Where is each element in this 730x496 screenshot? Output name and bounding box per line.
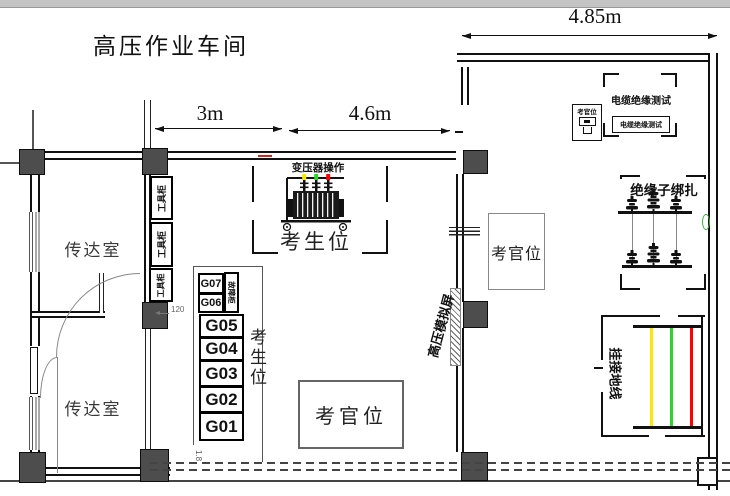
tool-cabinet: 工具柜 [150, 222, 173, 267]
arrowhead-left-icon [462, 33, 471, 39]
arrowhead-right-icon [441, 128, 450, 134]
desk-icon [579, 117, 596, 126]
cable-test-label: 电缆绝缘测试 [600, 92, 682, 107]
g-slot: G07 [198, 273, 224, 294]
station-edge [601, 435, 649, 437]
column [142, 302, 168, 329]
station-edge [665, 435, 705, 437]
examiner-cable-box: 考官位 [572, 104, 602, 141]
insulator-icon [625, 250, 639, 266]
dimension-3m: 3m [175, 101, 245, 126]
station-bracket [252, 220, 254, 254]
insulator-icon [646, 243, 661, 266]
dimension-line-4-6m [289, 130, 450, 131]
insulator-icon [625, 196, 639, 212]
wall-red-mark [258, 155, 272, 157]
arrowhead-right-icon [273, 126, 282, 132]
wall-right-perimeter [708, 53, 718, 490]
floor-plan: 高压作业车间 4.85m 3m 4.6m 传达室 [0, 0, 730, 496]
examiner-label: 考官位 [315, 400, 387, 429]
transformer-icon [280, 173, 352, 233]
room-label-reception-bottom: 传达室 [58, 395, 128, 420]
insulator-icon [669, 250, 683, 266]
examiner-label: 考官位 [491, 240, 542, 264]
offset-dim-120: 120 [171, 305, 184, 314]
wall-stub-right-building [461, 67, 469, 105]
station-bracket [252, 252, 278, 254]
examiner-station-right: 考官位 [488, 213, 545, 290]
dimension-4-6m: 4.6m [325, 101, 415, 126]
g-slot: G04 [199, 337, 244, 361]
page-title: 高压作业车间 [93, 27, 249, 61]
fault-cabinet: 故障柜 [224, 272, 239, 313]
station-edge [601, 315, 603, 360]
cable-test-device: 电缆绝缘测试 [612, 116, 670, 133]
tool-cabinet-label: 工具柜 [156, 273, 167, 297]
station-edge [601, 392, 603, 437]
wall-middle-stub-top [144, 100, 151, 149]
room-label-reception-top: 传达室 [58, 236, 128, 261]
ground-wire-yellow [650, 328, 653, 426]
bushing-tip-green [314, 174, 318, 180]
window-upper [29, 212, 41, 272]
column [461, 452, 488, 481]
column [19, 452, 46, 483]
arrowhead-left-icon [155, 311, 160, 315]
g-slot-label: G02 [205, 390, 237, 410]
cable-test-device-label: 电缆绝缘测试 [620, 120, 662, 130]
station-corner [620, 274, 640, 290]
station-corner [686, 274, 706, 290]
examinee-g-area-label: 考生位 [244, 328, 269, 400]
ground-wire-green [670, 328, 673, 426]
window-lower [29, 397, 41, 450]
boundary-bottom-line [0, 480, 730, 482]
examiner-station-main: 考官位 [298, 380, 404, 449]
station-bracket [362, 252, 388, 254]
g-slot-label: G06 [201, 297, 222, 309]
arrowhead-right-icon [708, 33, 717, 39]
door-handle-green-icon [702, 214, 710, 230]
bushing-tip-yellow [302, 174, 306, 180]
offset-dim-label: 1.8 [194, 450, 203, 461]
column [19, 149, 45, 175]
wall-top-main [19, 151, 456, 160]
dimension-4-85m: 4.85m [540, 4, 650, 29]
station-edge [594, 367, 603, 369]
g-slot-label: G07 [201, 278, 222, 290]
dimension-line-4-85m [462, 35, 717, 36]
station-edge [601, 315, 660, 317]
examiner-cable-label: 考官位 [573, 106, 601, 116]
tool-cabinet: 工具柜 [149, 268, 173, 302]
g-slot: G03 [199, 360, 244, 387]
fault-cabinet-label: 故障柜 [226, 281, 237, 304]
g-slot: G05 [199, 314, 244, 338]
wall-top-right-building [457, 53, 718, 62]
examinee-station-label: 考生位 [276, 226, 356, 256]
station-bracket [386, 166, 388, 202]
chair-icon [583, 127, 592, 134]
ground-rack-bar [633, 426, 702, 429]
station-bracket [386, 220, 388, 254]
g-area-line [193, 266, 263, 267]
column [140, 449, 169, 482]
dimension-tick [455, 131, 463, 133]
g-slot-label: G01 [205, 417, 237, 437]
station-corner [661, 73, 677, 87]
station-edge [701, 315, 703, 437]
wall-left-stub-line [32, 110, 34, 150]
offset-dim-1-8: 1.8 [193, 445, 207, 467]
column [142, 148, 168, 175]
desk-icon-inner [584, 120, 590, 123]
station-bracket [252, 166, 254, 202]
door-leaf-left [30, 347, 38, 394]
tool-cabinet-label: 工具柜 [155, 184, 168, 211]
station-corner [603, 73, 619, 87]
wall-hatch-ticks [449, 227, 480, 238]
ground-wire-label: 挂接地线 [607, 334, 626, 414]
g-slot: G06 [198, 293, 224, 313]
insulator-icon [646, 189, 661, 212]
dashed-boundary-line [150, 462, 730, 464]
arrowhead-left-icon [289, 128, 298, 134]
dimension-line-3m [155, 128, 282, 129]
wall-left-edge-line [0, 162, 19, 164]
g-slot-label: G04 [205, 339, 237, 359]
column [463, 301, 488, 328]
door-arc-room1 [56, 273, 140, 357]
tool-cabinet-label: 工具柜 [155, 231, 168, 258]
insulator-icon [669, 196, 683, 212]
bushing-tip-red [326, 174, 330, 180]
wall-middle-lower [145, 329, 151, 450]
g-area-line [193, 266, 194, 445]
dashed-boundary-line [150, 469, 730, 471]
arrowhead-left-icon [155, 126, 164, 132]
g-slot-label: G05 [205, 316, 237, 336]
g-slot: G01 [199, 412, 244, 441]
column [463, 150, 488, 174]
ground-wire-red [690, 328, 693, 426]
g-slot-label: G03 [205, 364, 237, 384]
g-slot: G02 [199, 386, 244, 413]
tool-cabinet: 工具柜 [150, 176, 173, 220]
door-arc-room2 [40, 357, 57, 398]
